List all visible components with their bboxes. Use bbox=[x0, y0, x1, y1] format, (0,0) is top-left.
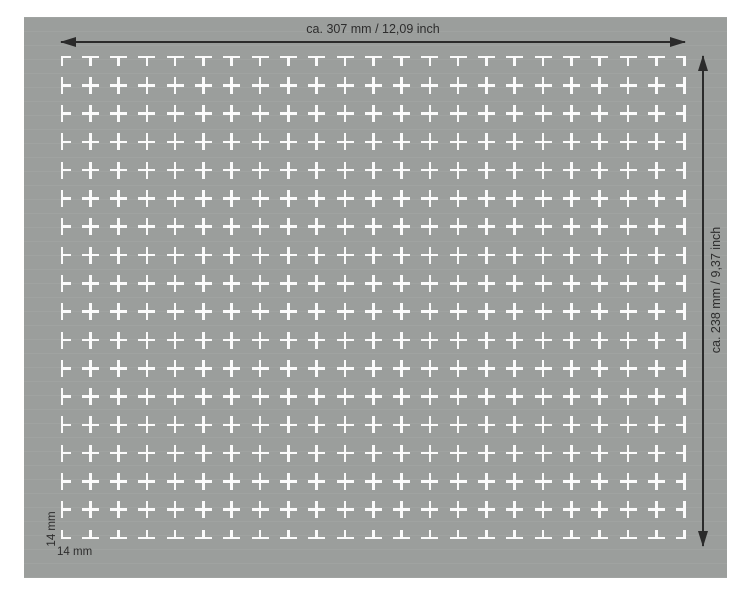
cross-mark bbox=[506, 530, 523, 547]
cross-mark bbox=[620, 275, 637, 292]
cross-mark bbox=[478, 332, 495, 349]
cross-mark bbox=[535, 77, 552, 94]
cross-mark bbox=[252, 530, 269, 547]
cross-mark bbox=[138, 416, 155, 433]
cross-mark bbox=[450, 105, 467, 122]
cross-mark bbox=[195, 247, 212, 264]
cross-mark bbox=[393, 530, 410, 547]
arrowhead-left-icon bbox=[60, 37, 76, 47]
cross-mark bbox=[620, 501, 637, 518]
cross-mark bbox=[110, 247, 127, 264]
cross-mark bbox=[506, 360, 523, 377]
cross-mark bbox=[478, 49, 495, 66]
cross-mark bbox=[676, 105, 693, 122]
cross-mark bbox=[195, 388, 212, 405]
cross-mark bbox=[591, 416, 608, 433]
cross-mark bbox=[280, 275, 297, 292]
cross-mark bbox=[421, 416, 438, 433]
cross-mark bbox=[280, 247, 297, 264]
cross-mark bbox=[648, 303, 665, 320]
cross-mark bbox=[648, 218, 665, 235]
cross-mark bbox=[138, 133, 155, 150]
cross-mark bbox=[308, 190, 325, 207]
cross-mark bbox=[563, 77, 580, 94]
cross-mark bbox=[195, 162, 212, 179]
cross-mark bbox=[648, 190, 665, 207]
cross-mark bbox=[252, 77, 269, 94]
cross-mark bbox=[223, 303, 240, 320]
cross-mark bbox=[167, 303, 184, 320]
cross-mark bbox=[648, 247, 665, 264]
cross-mark bbox=[195, 275, 212, 292]
cross-mark bbox=[337, 530, 354, 547]
cross-mark bbox=[223, 416, 240, 433]
cross-mark bbox=[280, 530, 297, 547]
cross-mark bbox=[167, 416, 184, 433]
cross-mark bbox=[280, 501, 297, 518]
cross-mark bbox=[478, 247, 495, 264]
cross-mark bbox=[195, 190, 212, 207]
cross-mark bbox=[506, 49, 523, 66]
cross-mark bbox=[676, 275, 693, 292]
cross-mark bbox=[54, 473, 71, 490]
cross-mark bbox=[82, 332, 99, 349]
cross-mark bbox=[365, 275, 382, 292]
cross-mark bbox=[620, 388, 637, 405]
cross-mark bbox=[280, 162, 297, 179]
cross-mark bbox=[506, 388, 523, 405]
cross-mark bbox=[138, 162, 155, 179]
cross-mark bbox=[252, 473, 269, 490]
cross-mark bbox=[337, 77, 354, 94]
cross-mark bbox=[620, 416, 637, 433]
cross-mark bbox=[223, 530, 240, 547]
cross-mark bbox=[676, 332, 693, 349]
cross-mark bbox=[535, 303, 552, 320]
cross-mark bbox=[393, 473, 410, 490]
cross-mark bbox=[563, 218, 580, 235]
cross-mark bbox=[393, 77, 410, 94]
cross-mark bbox=[167, 105, 184, 122]
cross-mark bbox=[591, 501, 608, 518]
cross-mark bbox=[337, 275, 354, 292]
cross-mark bbox=[82, 218, 99, 235]
cross-mark bbox=[563, 416, 580, 433]
cross-mark bbox=[506, 133, 523, 150]
cross-mark bbox=[535, 360, 552, 377]
cross-mark bbox=[337, 445, 354, 462]
cross-mark bbox=[337, 133, 354, 150]
cross-mark bbox=[337, 388, 354, 405]
cross-mark bbox=[337, 416, 354, 433]
cross-mark bbox=[478, 530, 495, 547]
arrowhead-down-icon bbox=[698, 531, 708, 547]
cross-mark bbox=[478, 190, 495, 207]
cross-mark bbox=[82, 303, 99, 320]
cross-mark bbox=[110, 275, 127, 292]
cross-mark bbox=[337, 218, 354, 235]
cross-mark bbox=[54, 247, 71, 264]
cross-mark bbox=[478, 275, 495, 292]
cross-mark bbox=[110, 303, 127, 320]
cross-mark bbox=[195, 133, 212, 150]
cross-mark bbox=[676, 77, 693, 94]
cross-mark bbox=[535, 332, 552, 349]
cross-mark bbox=[648, 77, 665, 94]
cross-mark bbox=[195, 445, 212, 462]
cross-mark bbox=[195, 218, 212, 235]
cross-mark bbox=[620, 105, 637, 122]
cross-mark bbox=[138, 105, 155, 122]
cross-mark bbox=[506, 332, 523, 349]
cross-mark bbox=[676, 530, 693, 547]
cross-mark bbox=[308, 105, 325, 122]
cross-mark bbox=[337, 303, 354, 320]
cross-mark bbox=[450, 49, 467, 66]
cross-mark bbox=[138, 275, 155, 292]
cross-mark bbox=[337, 49, 354, 66]
cross-mark bbox=[506, 218, 523, 235]
cross-mark bbox=[54, 133, 71, 150]
cross-mark bbox=[252, 247, 269, 264]
cross-mark bbox=[506, 445, 523, 462]
cross-mark bbox=[167, 162, 184, 179]
cross-mark bbox=[620, 190, 637, 207]
cross-mark bbox=[223, 133, 240, 150]
cross-mark bbox=[620, 530, 637, 547]
cross-mark bbox=[252, 190, 269, 207]
cross-mark bbox=[676, 133, 693, 150]
cross-mark bbox=[110, 501, 127, 518]
cross-mark bbox=[676, 360, 693, 377]
cross-mark bbox=[54, 162, 71, 179]
cross-mark bbox=[450, 388, 467, 405]
cross-mark bbox=[308, 416, 325, 433]
cross-mark bbox=[478, 501, 495, 518]
cross-mark bbox=[648, 49, 665, 66]
cross-mark bbox=[676, 247, 693, 264]
cross-mark bbox=[138, 530, 155, 547]
cross-mark bbox=[535, 133, 552, 150]
arrowhead-up-icon bbox=[698, 55, 708, 71]
cross-mark bbox=[591, 445, 608, 462]
cross-mark bbox=[421, 275, 438, 292]
cross-mark bbox=[82, 162, 99, 179]
cross-mark bbox=[676, 445, 693, 462]
cross-mark bbox=[308, 133, 325, 150]
cross-mark bbox=[591, 105, 608, 122]
cross-mark bbox=[337, 190, 354, 207]
cross-mark bbox=[195, 501, 212, 518]
cross-mark bbox=[252, 388, 269, 405]
cross-mark bbox=[421, 190, 438, 207]
cross-mark bbox=[167, 49, 184, 66]
cross-mark bbox=[535, 275, 552, 292]
cross-mark bbox=[252, 105, 269, 122]
cross-mark bbox=[591, 303, 608, 320]
cross-mark bbox=[393, 501, 410, 518]
cross-mark bbox=[54, 49, 71, 66]
cross-mark bbox=[110, 388, 127, 405]
cross-mark bbox=[110, 49, 127, 66]
cross-mark bbox=[421, 49, 438, 66]
cross-mark bbox=[365, 501, 382, 518]
cross-mark bbox=[110, 530, 127, 547]
cross-mark bbox=[450, 133, 467, 150]
cross-mark bbox=[365, 388, 382, 405]
cross-mark bbox=[591, 473, 608, 490]
cross-mark bbox=[450, 162, 467, 179]
cross-mark bbox=[421, 501, 438, 518]
cross-mark bbox=[591, 77, 608, 94]
cross-mark bbox=[535, 247, 552, 264]
cross-mark bbox=[478, 360, 495, 377]
cross-mark bbox=[591, 332, 608, 349]
cross-mark bbox=[648, 388, 665, 405]
cross-mark bbox=[195, 416, 212, 433]
cross-mark bbox=[563, 105, 580, 122]
cross-mark bbox=[393, 190, 410, 207]
height-dimension-label: ca. 238 mm / 9,37 inch bbox=[709, 227, 723, 353]
cross-mark bbox=[648, 530, 665, 547]
cross-mark bbox=[648, 445, 665, 462]
cross-mark bbox=[450, 530, 467, 547]
cross-mark bbox=[365, 445, 382, 462]
cross-mark bbox=[563, 388, 580, 405]
cross-mark bbox=[54, 388, 71, 405]
cross-mark bbox=[365, 49, 382, 66]
cross-mark bbox=[591, 360, 608, 377]
cross-mark bbox=[591, 162, 608, 179]
cross-mark bbox=[563, 133, 580, 150]
cross-mark bbox=[591, 218, 608, 235]
cross-mark bbox=[620, 218, 637, 235]
cross-mark bbox=[138, 473, 155, 490]
cross-mark bbox=[280, 445, 297, 462]
cross-mark bbox=[167, 473, 184, 490]
cross-mark bbox=[252, 501, 269, 518]
cross-mark bbox=[308, 473, 325, 490]
diagram-canvas: ca. 307 mm / 12,09 inch ca. 238 mm / 9,3… bbox=[0, 0, 750, 600]
column-spacing-label: 14 mm bbox=[57, 545, 92, 559]
cross-mark bbox=[54, 77, 71, 94]
cross-mark bbox=[535, 190, 552, 207]
cross-mark bbox=[54, 275, 71, 292]
cross-mark bbox=[110, 416, 127, 433]
cross-mark bbox=[648, 275, 665, 292]
cross-mark bbox=[393, 388, 410, 405]
cross-mark bbox=[167, 501, 184, 518]
cross-mark bbox=[54, 332, 71, 349]
cross-mark bbox=[138, 388, 155, 405]
cross-mark bbox=[54, 218, 71, 235]
cross-mark bbox=[54, 445, 71, 462]
cross-mark bbox=[393, 218, 410, 235]
cross-mark bbox=[138, 77, 155, 94]
cross-mark bbox=[82, 190, 99, 207]
cross-mark bbox=[82, 247, 99, 264]
cross-mark bbox=[506, 77, 523, 94]
cross-mark bbox=[450, 445, 467, 462]
cross-mark bbox=[110, 473, 127, 490]
cross-mark bbox=[82, 360, 99, 377]
cross-mark bbox=[620, 162, 637, 179]
width-dimension-arrow bbox=[61, 41, 685, 43]
cross-mark bbox=[195, 530, 212, 547]
crosshair-grid bbox=[0, 0, 750, 600]
cross-mark bbox=[252, 49, 269, 66]
cross-mark bbox=[421, 77, 438, 94]
cross-mark bbox=[365, 77, 382, 94]
cross-mark bbox=[676, 162, 693, 179]
cross-mark bbox=[223, 247, 240, 264]
arrowhead-right-icon bbox=[670, 37, 686, 47]
cross-mark bbox=[110, 162, 127, 179]
cross-mark bbox=[223, 275, 240, 292]
cross-mark bbox=[450, 332, 467, 349]
cross-mark bbox=[591, 190, 608, 207]
row-spacing-label: 14 mm bbox=[45, 511, 59, 546]
cross-mark bbox=[450, 218, 467, 235]
cross-mark bbox=[506, 190, 523, 207]
cross-mark bbox=[280, 388, 297, 405]
cross-mark bbox=[365, 190, 382, 207]
cross-mark bbox=[620, 473, 637, 490]
cross-mark bbox=[563, 275, 580, 292]
cross-mark bbox=[393, 133, 410, 150]
cross-mark bbox=[421, 133, 438, 150]
cross-mark bbox=[421, 530, 438, 547]
cross-mark bbox=[82, 77, 99, 94]
cross-mark bbox=[591, 247, 608, 264]
cross-mark bbox=[393, 49, 410, 66]
cross-mark bbox=[591, 49, 608, 66]
cross-mark bbox=[393, 162, 410, 179]
cross-mark bbox=[563, 501, 580, 518]
cross-mark bbox=[110, 332, 127, 349]
cross-mark bbox=[393, 332, 410, 349]
cross-mark bbox=[308, 360, 325, 377]
cross-mark bbox=[591, 388, 608, 405]
cross-mark bbox=[308, 77, 325, 94]
cross-mark bbox=[648, 416, 665, 433]
cross-mark bbox=[167, 275, 184, 292]
cross-mark bbox=[308, 49, 325, 66]
cross-mark bbox=[280, 49, 297, 66]
cross-mark bbox=[167, 388, 184, 405]
cross-mark bbox=[421, 303, 438, 320]
cross-mark bbox=[54, 190, 71, 207]
cross-mark bbox=[195, 49, 212, 66]
cross-mark bbox=[506, 275, 523, 292]
cross-mark bbox=[82, 445, 99, 462]
cross-mark bbox=[563, 530, 580, 547]
cross-mark bbox=[563, 303, 580, 320]
cross-mark bbox=[110, 445, 127, 462]
cross-mark bbox=[110, 360, 127, 377]
cross-mark bbox=[167, 77, 184, 94]
cross-mark bbox=[506, 247, 523, 264]
cross-mark bbox=[337, 473, 354, 490]
cross-mark bbox=[308, 332, 325, 349]
cross-mark bbox=[365, 162, 382, 179]
cross-mark bbox=[676, 190, 693, 207]
cross-mark bbox=[648, 360, 665, 377]
cross-mark bbox=[478, 77, 495, 94]
cross-mark bbox=[365, 332, 382, 349]
cross-mark bbox=[591, 530, 608, 547]
cross-mark bbox=[393, 247, 410, 264]
cross-mark bbox=[648, 105, 665, 122]
cross-mark bbox=[620, 360, 637, 377]
cross-mark bbox=[223, 445, 240, 462]
cross-mark bbox=[620, 247, 637, 264]
cross-mark bbox=[252, 332, 269, 349]
cross-mark bbox=[308, 388, 325, 405]
cross-mark bbox=[223, 388, 240, 405]
cross-mark bbox=[82, 473, 99, 490]
cross-mark bbox=[450, 416, 467, 433]
cross-mark bbox=[450, 247, 467, 264]
cross-mark bbox=[252, 275, 269, 292]
cross-mark bbox=[308, 275, 325, 292]
cross-mark bbox=[676, 218, 693, 235]
cross-mark bbox=[280, 303, 297, 320]
cross-mark bbox=[167, 218, 184, 235]
cross-mark bbox=[195, 303, 212, 320]
cross-mark bbox=[421, 473, 438, 490]
cross-mark bbox=[676, 473, 693, 490]
cross-mark bbox=[252, 360, 269, 377]
cross-mark bbox=[563, 162, 580, 179]
cross-mark bbox=[648, 473, 665, 490]
cross-mark bbox=[648, 501, 665, 518]
cross-mark bbox=[648, 332, 665, 349]
cross-mark bbox=[138, 360, 155, 377]
cross-mark bbox=[478, 105, 495, 122]
cross-mark bbox=[308, 162, 325, 179]
cross-mark bbox=[478, 218, 495, 235]
cross-mark bbox=[535, 530, 552, 547]
cross-mark bbox=[365, 105, 382, 122]
cross-mark bbox=[280, 360, 297, 377]
cross-mark bbox=[82, 501, 99, 518]
cross-mark bbox=[450, 303, 467, 320]
cross-mark bbox=[535, 501, 552, 518]
cross-mark bbox=[676, 501, 693, 518]
cross-mark bbox=[167, 190, 184, 207]
cross-mark bbox=[421, 105, 438, 122]
cross-mark bbox=[478, 162, 495, 179]
cross-mark bbox=[195, 473, 212, 490]
cross-mark bbox=[337, 247, 354, 264]
cross-mark bbox=[54, 416, 71, 433]
cross-mark bbox=[223, 77, 240, 94]
cross-mark bbox=[82, 275, 99, 292]
cross-mark bbox=[252, 416, 269, 433]
cross-mark bbox=[110, 105, 127, 122]
cross-mark bbox=[563, 190, 580, 207]
cross-mark bbox=[421, 388, 438, 405]
cross-mark bbox=[223, 162, 240, 179]
cross-mark bbox=[365, 247, 382, 264]
cross-mark bbox=[195, 360, 212, 377]
cross-mark bbox=[167, 530, 184, 547]
cross-mark bbox=[223, 360, 240, 377]
cross-mark bbox=[337, 501, 354, 518]
cross-mark bbox=[563, 247, 580, 264]
cross-mark bbox=[308, 247, 325, 264]
